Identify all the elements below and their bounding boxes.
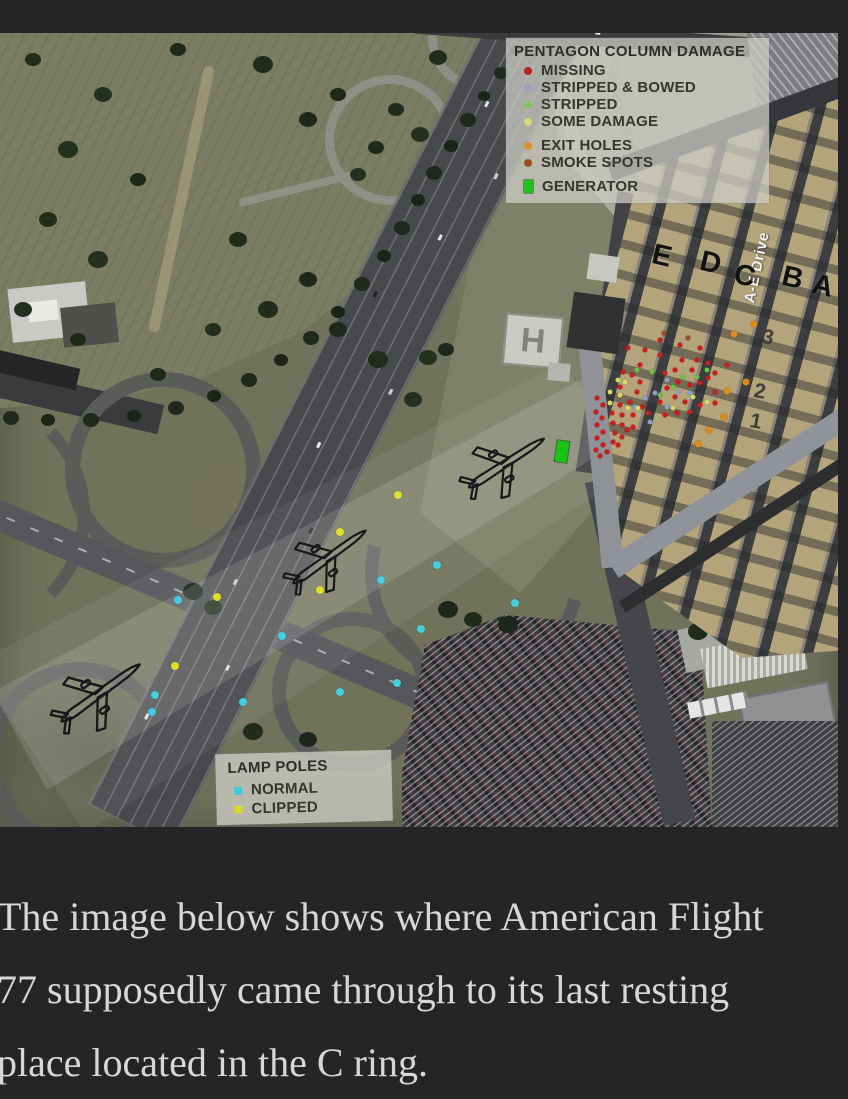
caption-line: place located in the C ring. — [0, 1026, 848, 1099]
caption-line: 77 supposedly came through to its last r… — [0, 953, 848, 1026]
legend-item: STRIPPED & BOWED — [514, 79, 761, 96]
legend-item: CLIPPED — [228, 797, 384, 818]
pentagon-aerial-figure[interactable]: H A-E Drive EDCBA321 PENTAGON COLUMN DAM… — [0, 33, 838, 827]
damage-legend-title: PENTAGON COLUMN DAMAGE — [514, 43, 761, 60]
legend-bullet-icon — [524, 84, 532, 92]
legend-bullet-icon — [234, 805, 242, 813]
legend-item-label: NORMAL — [251, 780, 318, 799]
legend-bullet-icon — [524, 180, 533, 193]
legend-item-label: STRIPPED — [541, 96, 618, 113]
legend-item: NORMAL — [228, 778, 384, 799]
legend-bullet-icon — [524, 67, 532, 75]
article-page: H A-E Drive EDCBA321 PENTAGON COLUMN DAM… — [0, 0, 848, 1080]
pentagon-column-damage-legend: PENTAGON COLUMN DAMAGE MISSINGSTRIPPED &… — [506, 38, 769, 203]
legend-group: MISSINGSTRIPPED & BOWEDSTRIPPEDSOME DAMA… — [514, 62, 761, 130]
legend-item-label: CLIPPED — [251, 799, 318, 818]
corridor-number-2: 2 — [752, 379, 768, 405]
legend-group: NORMALCLIPPED — [228, 778, 385, 818]
legend-item-label: MISSING — [541, 62, 606, 79]
caption-line: The image below shows where American Fli… — [0, 880, 848, 953]
legend-item-label: EXIT HOLES — [541, 137, 632, 154]
legend-group: GENERATOR — [514, 178, 761, 195]
legend-group: EXIT HOLESSMOKE SPOTS — [514, 137, 761, 171]
legend-item: STRIPPED — [514, 96, 761, 113]
legend-item: MISSING — [514, 62, 761, 79]
legend-item-label: SOME DAMAGE — [541, 113, 658, 130]
legend-item-label: STRIPPED & BOWED — [541, 79, 696, 96]
ring-letter-B: B — [779, 260, 807, 297]
legend-item: EXIT HOLES — [514, 137, 761, 154]
legend-item: GENERATOR — [514, 178, 761, 195]
ring-letter-D: D — [697, 245, 725, 282]
corridor-number-3: 3 — [760, 325, 776, 351]
ring-letter-A: A — [809, 268, 837, 305]
lamp-legend-title: LAMP POLES — [227, 756, 383, 777]
legend-item: SOME DAMAGE — [514, 113, 761, 130]
legend-item: SMOKE SPOTS — [514, 154, 761, 171]
legend-bullet-icon — [524, 101, 532, 109]
legend-item-label: GENERATOR — [542, 178, 638, 195]
legend-bullet-icon — [234, 786, 242, 794]
legend-bullet-icon — [524, 118, 532, 126]
legend-bullet-icon — [524, 142, 532, 150]
corridor-number-1: 1 — [748, 409, 764, 435]
lamp-poles-legend: LAMP POLES NORMALCLIPPED — [215, 750, 393, 826]
ring-letter-E: E — [649, 238, 675, 275]
article-caption: The image below shows where American Fli… — [0, 880, 848, 1099]
legend-bullet-icon — [524, 159, 532, 167]
legend-item-label: SMOKE SPOTS — [541, 154, 653, 171]
lamp-legend-items: NORMALCLIPPED — [228, 778, 385, 818]
damage-legend-items: MISSINGSTRIPPED & BOWEDSTRIPPEDSOME DAMA… — [514, 62, 761, 195]
